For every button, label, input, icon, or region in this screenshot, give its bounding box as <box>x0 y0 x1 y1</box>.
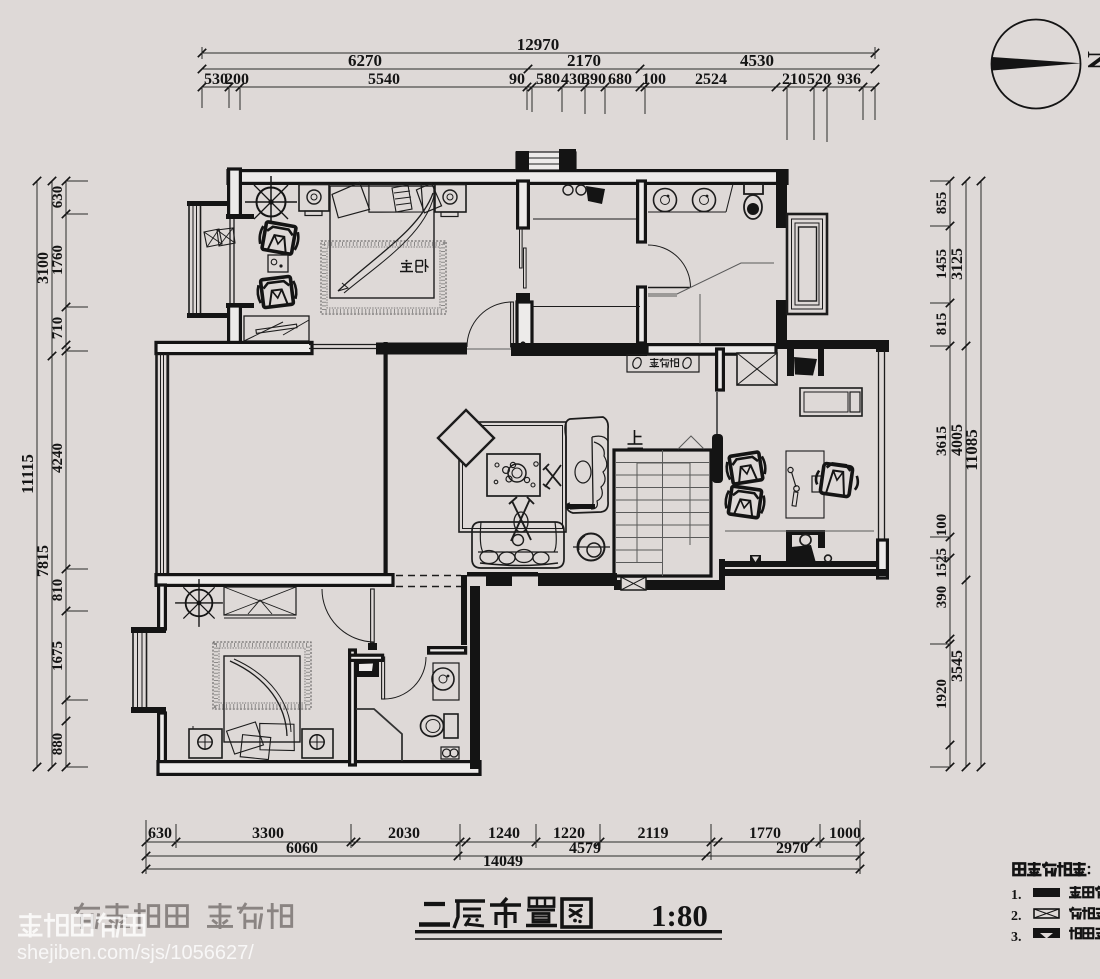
svg-text:390: 390 <box>582 71 606 88</box>
svg-text:210: 210 <box>782 71 806 88</box>
svg-text:710: 710 <box>50 317 66 340</box>
svg-text:880: 880 <box>50 733 66 756</box>
svg-text:520: 520 <box>807 71 831 88</box>
svg-text:810: 810 <box>50 579 66 602</box>
svg-text:390: 390 <box>934 586 950 609</box>
svg-text:200: 200 <box>225 71 249 88</box>
svg-text:815: 815 <box>934 313 950 336</box>
svg-text:1760: 1760 <box>50 245 66 275</box>
svg-text:2170: 2170 <box>567 51 601 70</box>
svg-text:3615: 3615 <box>934 426 950 456</box>
svg-text:2119: 2119 <box>637 825 668 842</box>
svg-text:630: 630 <box>148 825 172 842</box>
svg-text:580: 580 <box>536 71 560 88</box>
svg-text:90: 90 <box>509 71 525 88</box>
svg-text:5540: 5540 <box>368 71 400 88</box>
svg-text:2030: 2030 <box>388 825 420 842</box>
svg-text:1455: 1455 <box>934 249 950 279</box>
svg-text:N: N <box>1082 51 1100 70</box>
svg-text:100: 100 <box>642 71 666 88</box>
svg-text:3545: 3545 <box>949 650 966 682</box>
svg-text:12970: 12970 <box>517 35 560 54</box>
svg-text:4579: 4579 <box>569 840 601 857</box>
svg-text:shejiben.com/sjs/1056627/: shejiben.com/sjs/1056627/ <box>17 942 254 964</box>
svg-text:100: 100 <box>934 514 950 537</box>
svg-text:7815: 7815 <box>35 545 52 577</box>
svg-text:1920: 1920 <box>934 679 950 709</box>
svg-text:2524: 2524 <box>695 71 727 88</box>
svg-text:1.: 1. <box>1011 888 1022 903</box>
svg-text:1:80: 1:80 <box>651 898 708 933</box>
svg-text:2.: 2. <box>1011 909 1022 924</box>
svg-text:2970: 2970 <box>776 840 808 857</box>
svg-text:680: 680 <box>608 71 632 88</box>
svg-text:14049: 14049 <box>483 853 523 870</box>
svg-text:1240: 1240 <box>488 825 520 842</box>
svg-text:1675: 1675 <box>50 641 66 671</box>
svg-text:936: 936 <box>837 71 861 88</box>
svg-text:4530: 4530 <box>740 51 774 70</box>
svg-text:4240: 4240 <box>50 443 66 473</box>
svg-text:3125: 3125 <box>949 248 966 280</box>
svg-text:11085: 11085 <box>962 429 981 471</box>
svg-text:6060: 6060 <box>286 840 318 857</box>
svg-text:1525: 1525 <box>934 548 950 578</box>
svg-text:855: 855 <box>934 192 950 215</box>
svg-text:3.: 3. <box>1011 930 1022 945</box>
svg-text:11115: 11115 <box>18 454 37 494</box>
svg-text:630: 630 <box>50 186 66 209</box>
svg-text:1000: 1000 <box>829 825 861 842</box>
svg-text:6270: 6270 <box>348 51 382 70</box>
svg-text:3300: 3300 <box>252 825 284 842</box>
